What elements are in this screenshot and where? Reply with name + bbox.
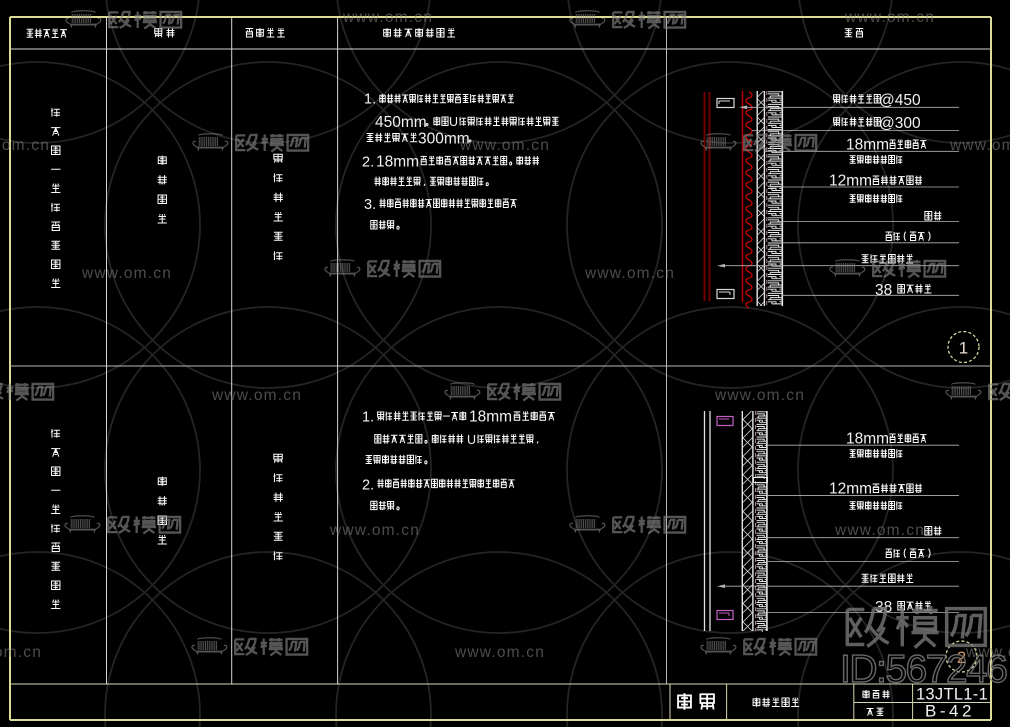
svg-text:18mm: 18mm — [846, 431, 889, 448]
svg-text:B-42: B-42 — [925, 702, 975, 721]
svg-text:www.om.cn: www.om.cn — [714, 387, 805, 404]
svg-text:www.om.cn: www.om.cn — [329, 522, 420, 539]
svg-text:3.: 3. — [364, 197, 376, 213]
svg-text:www.om.cn: www.om.cn — [342, 9, 433, 26]
svg-text:www.om.cn: www.om.cn — [949, 137, 1010, 154]
svg-text:1.: 1. — [362, 410, 374, 426]
svg-text:18mm: 18mm — [846, 137, 889, 154]
svg-text:www.om.cn: www.om.cn — [0, 644, 42, 661]
svg-text:www.om.cn: www.om.cn — [454, 644, 545, 661]
svg-text:38: 38 — [875, 282, 892, 299]
svg-text:www.om.cn: www.om.cn — [0, 137, 50, 154]
svg-text:U: U — [449, 115, 458, 129]
svg-text:2.: 2. — [362, 478, 374, 494]
svg-text:www.om.cn: www.om.cn — [211, 387, 302, 404]
svg-text:1.: 1. — [364, 92, 376, 108]
svg-text:www.om.cn: www.om.cn — [81, 265, 172, 282]
svg-text:@300: @300 — [879, 115, 921, 132]
svg-text:18mm: 18mm — [469, 409, 512, 426]
svg-text:ID:567246: ID:567246 — [840, 648, 1006, 691]
svg-text:450mm: 450mm — [375, 114, 427, 131]
svg-text:www.om.cn: www.om.cn — [844, 9, 935, 26]
svg-text:12mm: 12mm — [829, 480, 872, 497]
svg-text:www.om.cn: www.om.cn — [459, 137, 550, 154]
svg-text:2.: 2. — [362, 155, 374, 171]
svg-text:12mm: 12mm — [829, 172, 872, 189]
svg-text:18mm: 18mm — [376, 154, 419, 171]
svg-text:1: 1 — [959, 339, 968, 358]
svg-text:@450: @450 — [879, 92, 921, 109]
svg-text:www.om.cn: www.om.cn — [584, 265, 675, 282]
svg-text:www.om.cn: www.om.cn — [834, 522, 925, 539]
svg-text:U: U — [467, 433, 476, 447]
